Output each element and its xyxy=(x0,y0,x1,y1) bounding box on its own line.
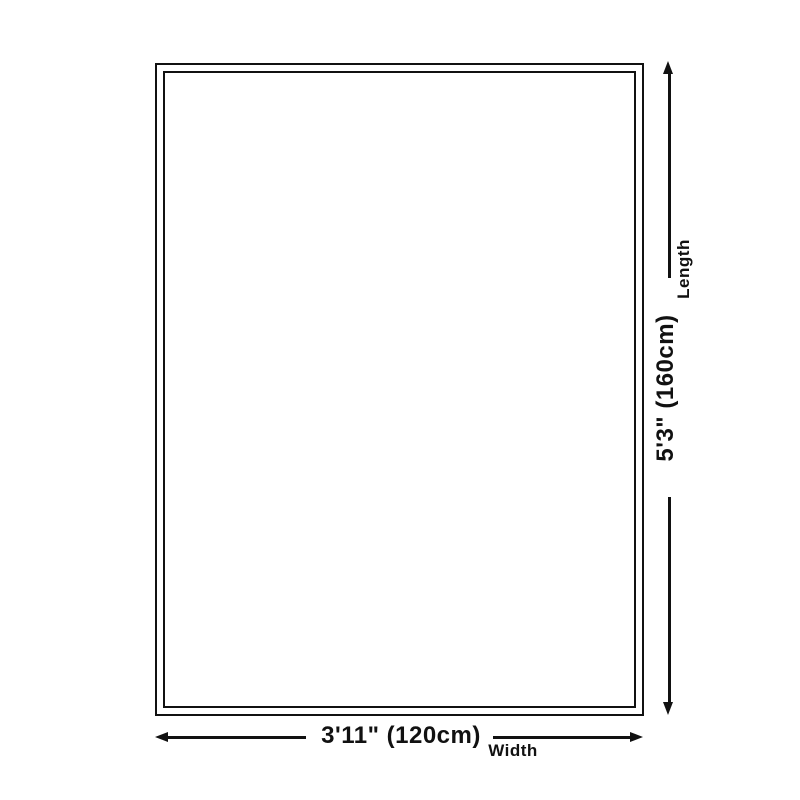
rug-outline-inner xyxy=(163,71,636,708)
length-axis-label: Length xyxy=(674,239,694,299)
width-arrow-line-right xyxy=(493,736,631,739)
arrow-right-icon xyxy=(630,732,643,742)
width-value-label: 3'11" (120cm) xyxy=(308,721,494,751)
width-arrow-line-left xyxy=(166,736,306,739)
arrow-down-icon xyxy=(663,702,673,715)
length-arrow-line-top xyxy=(668,73,671,278)
length-value-label: 5'3" (160cm) xyxy=(651,310,681,466)
size-diagram: Length 5'3" (160cm) 3'11" (120cm) Width xyxy=(0,0,800,800)
length-arrow-line-bottom xyxy=(668,497,671,703)
width-axis-label: Width xyxy=(485,741,541,761)
